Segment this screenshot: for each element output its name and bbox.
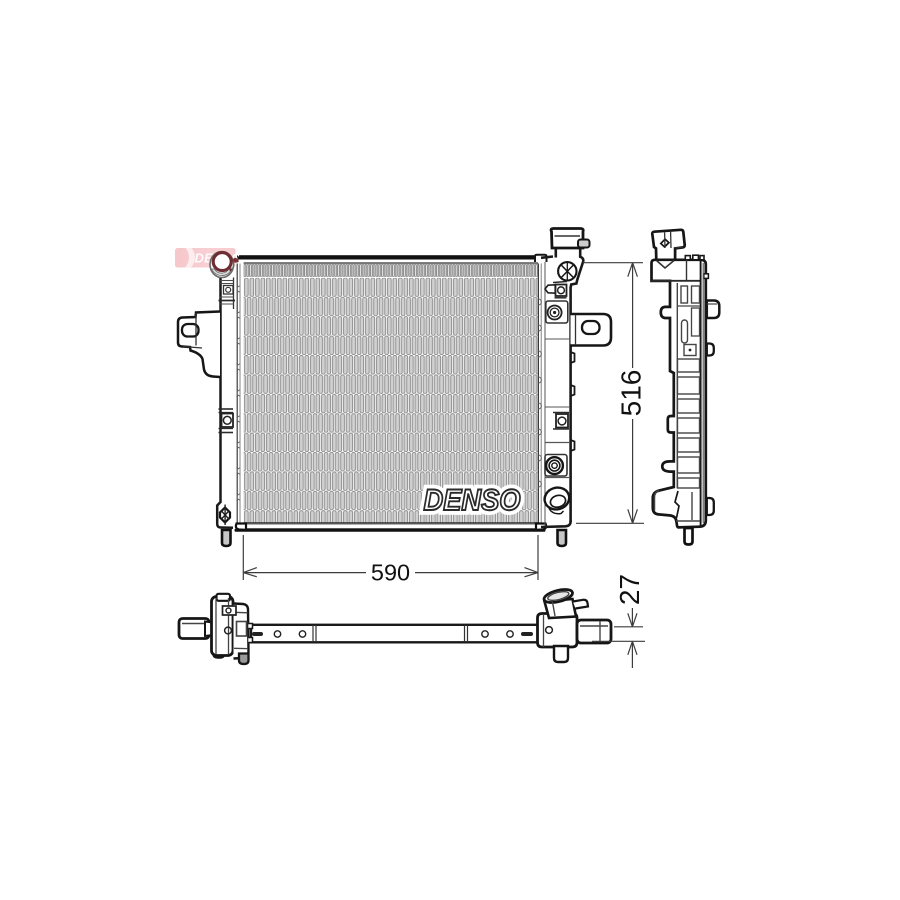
svg-text:DENSO: DENSO: [424, 484, 521, 517]
svg-text:27: 27: [614, 574, 645, 605]
svg-text:516: 516: [616, 370, 647, 417]
svg-text:590: 590: [371, 560, 410, 586]
